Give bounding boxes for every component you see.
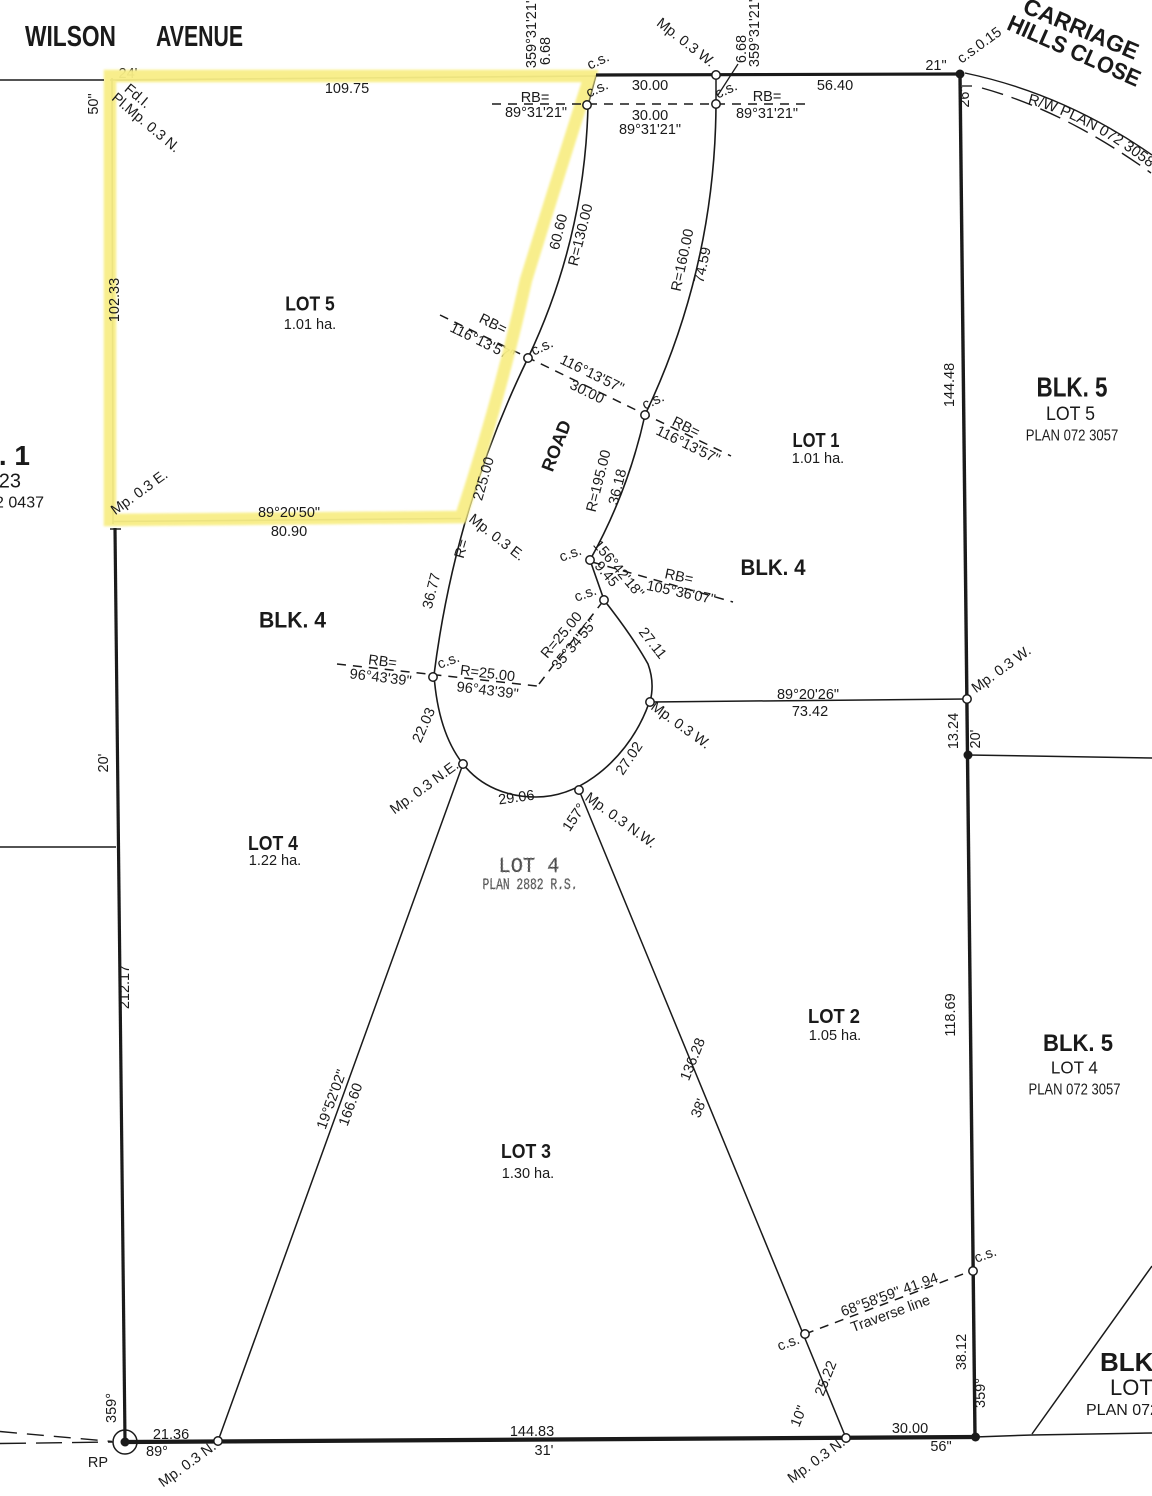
svg-text:PLAN 2882 R.S.: PLAN 2882 R.S. bbox=[483, 876, 578, 894]
svg-text:PLAN 072 3057: PLAN 072 3057 bbox=[1029, 1082, 1121, 1099]
svg-text:PLAN 072 0437: PLAN 072 0437 bbox=[0, 495, 44, 512]
svg-text:109.75: 109.75 bbox=[325, 81, 369, 97]
svg-text:LOT 3: LOT 3 bbox=[501, 1141, 551, 1163]
svg-text:LOT 2: LOT 2 bbox=[808, 1006, 860, 1028]
svg-text:73.42: 73.42 bbox=[792, 704, 828, 720]
svg-text:1.30 ha.: 1.30 ha. bbox=[502, 1166, 554, 1182]
svg-text:AVENUE: AVENUE bbox=[156, 21, 243, 53]
svg-text:1.01 ha.: 1.01 ha. bbox=[284, 317, 336, 333]
svg-text:1.05 ha.: 1.05 ha. bbox=[809, 1028, 861, 1044]
svg-text:144.83: 144.83 bbox=[510, 1424, 554, 1440]
svg-text:212.17: 212.17 bbox=[117, 965, 133, 1009]
svg-text:118.69: 118.69 bbox=[943, 993, 959, 1036]
svg-text:359°: 359° bbox=[104, 1393, 120, 1423]
svg-text:LOT 1: LOT 1 bbox=[793, 430, 840, 452]
svg-text:RP: RP bbox=[88, 1455, 108, 1471]
svg-text:LOT 23: LOT 23 bbox=[0, 471, 21, 493]
svg-text:102.33: 102.33 bbox=[107, 278, 123, 322]
svg-text:144.48: 144.48 bbox=[942, 363, 958, 407]
svg-text:BLK. 5: BLK. 5 bbox=[1043, 1030, 1113, 1057]
svg-text:20': 20' bbox=[968, 729, 984, 748]
svg-text:89°20'26": 89°20'26" bbox=[777, 687, 839, 703]
svg-text:RB=: RB= bbox=[753, 89, 782, 105]
svg-text:LOT 3: LOT 3 bbox=[1110, 1375, 1152, 1400]
svg-text:21.36: 21.36 bbox=[153, 1427, 189, 1443]
svg-text:LOT 4: LOT 4 bbox=[1051, 1058, 1098, 1078]
svg-text:PLAN 072 3057: PLAN 072 3057 bbox=[1026, 427, 1119, 444]
svg-text:89°20'50": 89°20'50" bbox=[258, 505, 320, 521]
svg-text:30.00: 30.00 bbox=[632, 78, 668, 94]
svg-text:BLK. 4: BLK. 4 bbox=[259, 608, 327, 633]
svg-text:LOT 5: LOT 5 bbox=[285, 294, 335, 316]
svg-text:1.01 ha.: 1.01 ha. bbox=[792, 451, 844, 467]
svg-text:359°: 359° bbox=[973, 1378, 989, 1408]
svg-text:BLK. 5: BLK. 5 bbox=[1037, 372, 1108, 403]
svg-text:PLAN 072 30: PLAN 072 30 bbox=[1086, 1402, 1152, 1419]
svg-text:20': 20' bbox=[96, 753, 112, 772]
svg-text:BLK. 4: BLK. 4 bbox=[741, 555, 807, 580]
svg-text:80.90: 80.90 bbox=[271, 524, 307, 540]
svg-text:38.12: 38.12 bbox=[954, 1334, 970, 1370]
svg-text:LOT 5: LOT 5 bbox=[1046, 403, 1095, 425]
svg-text:LOT 4: LOT 4 bbox=[248, 833, 299, 855]
svg-text:WILSON: WILSON bbox=[25, 21, 116, 53]
svg-text:50": 50" bbox=[86, 93, 102, 114]
svg-text:31': 31' bbox=[535, 1443, 554, 1459]
svg-text:56": 56" bbox=[930, 1439, 951, 1455]
svg-text:359°31'21": 359°31'21" bbox=[747, 0, 763, 67]
svg-text:89°: 89° bbox=[146, 1444, 168, 1460]
svg-text:56.40: 56.40 bbox=[817, 78, 853, 94]
svg-text:BLK. 1: BLK. 1 bbox=[0, 440, 30, 471]
svg-text:RB=: RB= bbox=[521, 90, 550, 106]
svg-text:89°31'21": 89°31'21" bbox=[505, 105, 567, 121]
svg-text:89°31'21": 89°31'21" bbox=[736, 106, 798, 122]
svg-text:26": 26" bbox=[957, 86, 973, 107]
svg-text:21": 21" bbox=[925, 58, 946, 74]
svg-text:13.24: 13.24 bbox=[946, 713, 962, 749]
svg-text:BLK. 5: BLK. 5 bbox=[1100, 1347, 1152, 1377]
svg-text:6.68: 6.68 bbox=[538, 37, 554, 65]
svg-text:1.22 ha.: 1.22 ha. bbox=[249, 853, 301, 869]
svg-text:30.00: 30.00 bbox=[892, 1421, 928, 1437]
svg-text:89°31'21": 89°31'21" bbox=[619, 122, 681, 138]
